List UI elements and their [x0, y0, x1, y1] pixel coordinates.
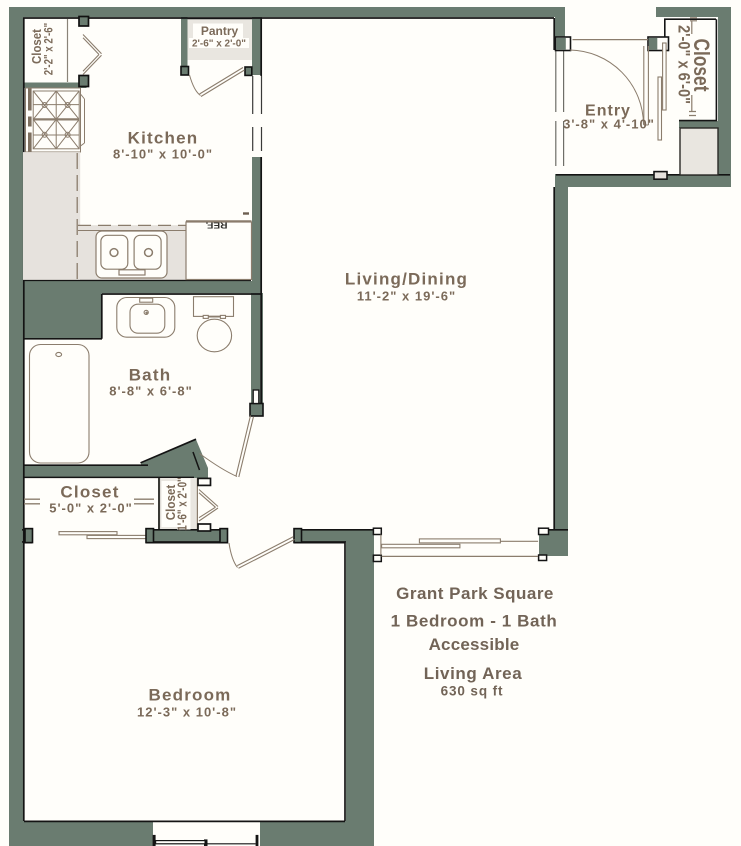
- svg-text:11'-2" x 19'-6": 11'-2" x 19'-6": [357, 289, 456, 304]
- svg-text:8'-10" x 10'-0": 8'-10" x 10'-0": [113, 147, 213, 162]
- svg-text:Bedroom: Bedroom: [148, 686, 231, 705]
- svg-text:3'-8" x 4'-10": 3'-8" x 4'-10": [563, 117, 655, 132]
- svg-text:1 Bedroom - 1 Bath: 1 Bedroom - 1 Bath: [391, 612, 558, 631]
- svg-text:630 sq ft: 630 sq ft: [441, 684, 504, 699]
- svg-text:Kitchen: Kitchen: [128, 129, 199, 148]
- svg-text:2'-2" x 2'-6": 2'-2" x 2'-6": [41, 23, 55, 75]
- svg-text:2'-6" x 2'-0": 2'-6" x 2'-0": [192, 39, 246, 50]
- svg-text:Closet: Closet: [60, 483, 119, 502]
- svg-text:Living/Dining: Living/Dining: [345, 270, 468, 289]
- svg-text:Bath: Bath: [129, 366, 172, 385]
- svg-text:Accessible: Accessible: [429, 635, 520, 654]
- svg-text:REF.: REF.: [206, 221, 228, 231]
- svg-text:5'-0" x 2'-0": 5'-0" x 2'-0": [49, 501, 133, 516]
- svg-text:12'-3" x 10'-8": 12'-3" x 10'-8": [137, 705, 237, 720]
- svg-text:1'-6" x 2'-0": 1'-6" x 2'-0": [176, 477, 190, 531]
- svg-text:2'-0" x 6'-0": 2'-0" x 6'-0": [674, 25, 692, 104]
- svg-text:Living Area: Living Area: [424, 664, 523, 683]
- svg-text:Pantry: Pantry: [201, 24, 239, 38]
- svg-text:Grant Park Square: Grant Park Square: [396, 584, 554, 603]
- svg-text:8'-8" x 6'-8": 8'-8" x 6'-8": [109, 384, 193, 399]
